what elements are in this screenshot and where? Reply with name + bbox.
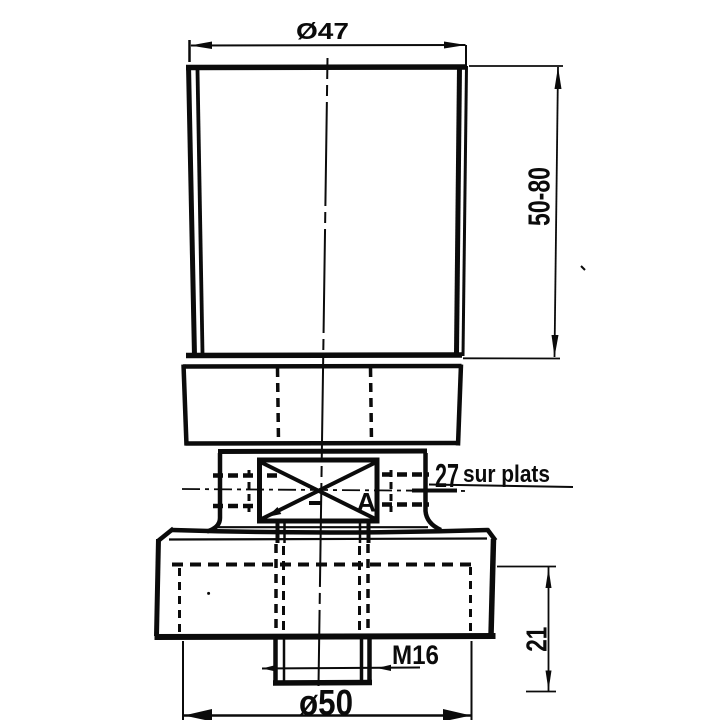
svg-text:ø50: ø50 xyxy=(299,682,353,720)
svg-text:50-80: 50-80 xyxy=(522,167,557,226)
svg-text:Ø47: Ø47 xyxy=(296,18,349,44)
svg-text:A: A xyxy=(357,488,377,518)
svg-text:27: 27 xyxy=(435,457,459,494)
svg-text:M16: M16 xyxy=(392,640,439,670)
svg-text:sur plats: sur plats xyxy=(463,461,550,488)
svg-text:21: 21 xyxy=(522,627,554,652)
